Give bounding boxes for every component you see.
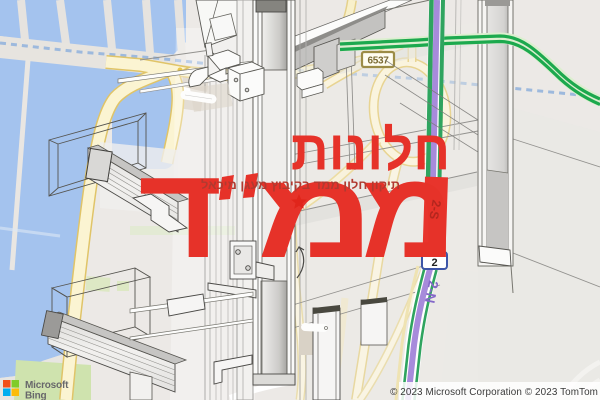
- svg-text:© 2023 Microsoft Corporation ©: © 2023 Microsoft Corporation © 2023 TomT…: [390, 387, 598, 398]
- svg-text:תיקון חלון ממד בקיבוץ מעגן מיכ: תיקון חלון ממד בקיבוץ מעגן מיכאל: [201, 178, 400, 192]
- svg-text:Microsoft: Microsoft: [25, 380, 69, 391]
- svg-text:ד: ד: [138, 140, 223, 285]
- svg-text:Bing: Bing: [25, 391, 47, 400]
- svg-text:חלונות: חלונות: [291, 119, 450, 182]
